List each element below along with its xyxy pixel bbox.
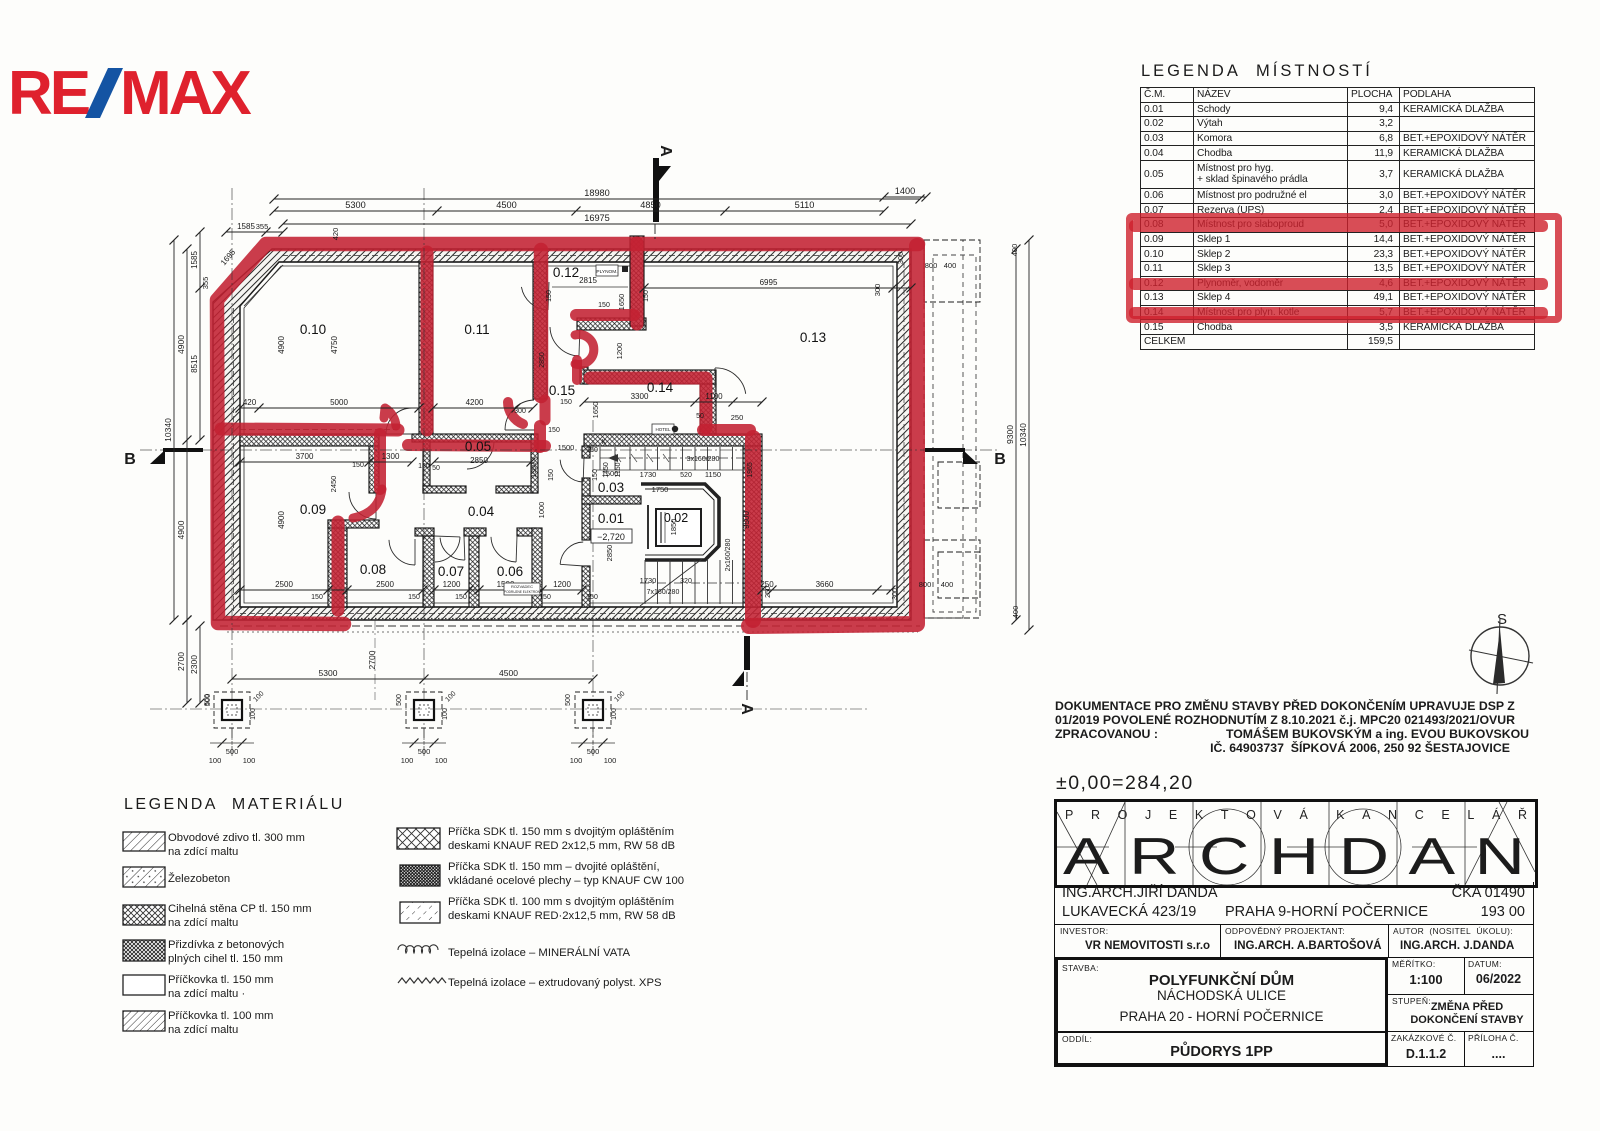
svg-text:A R C H D A N: A R C H D A N <box>1063 828 1525 885</box>
svg-text:500: 500 <box>418 747 431 756</box>
svg-text:150: 150 <box>352 462 364 469</box>
svg-text:plných cihel tl. 150 mm: plných cihel tl. 150 mm <box>168 953 283 965</box>
svg-text:150: 150 <box>418 463 430 470</box>
svg-text:16975: 16975 <box>584 213 610 223</box>
svg-text:deskami KNAUF RED·2x12,5 mm, R: deskami KNAUF RED·2x12,5 mm, RW 58 dB <box>448 910 676 922</box>
svg-text:1000: 1000 <box>537 502 546 519</box>
svg-text:1300: 1300 <box>531 462 538 478</box>
svg-text:1150: 1150 <box>705 470 721 479</box>
svg-text:4900: 4900 <box>176 335 186 354</box>
svg-text:deskami KNAUF RED 2x12,5 mm, R: deskami KNAUF RED 2x12,5 mm, RW 58 dB <box>448 840 675 852</box>
svg-text:10340: 10340 <box>1018 423 1028 447</box>
svg-text:na zdící maltu ·: na zdící maltu · <box>168 988 245 1000</box>
svg-text:0.14: 0.14 <box>647 380 674 395</box>
svg-text:100: 100 <box>613 690 626 703</box>
svg-text:300: 300 <box>514 408 526 415</box>
svg-text:0.11: 0.11 <box>464 322 489 337</box>
svg-text:0.03: 0.03 <box>598 480 624 495</box>
svg-text:0.13: 0.13 <box>800 330 826 345</box>
svg-text:0.08: 0.08 <box>360 562 386 577</box>
svg-text:ROZVADEC: ROZVADEC <box>511 584 533 589</box>
svg-text:5110: 5110 <box>795 200 815 210</box>
svg-text:50: 50 <box>696 413 704 420</box>
svg-text:50: 50 <box>432 465 440 472</box>
svg-text:150: 150 <box>598 302 610 309</box>
svg-text:500: 500 <box>396 694 403 706</box>
svg-text:6995: 6995 <box>760 278 778 287</box>
svg-text:100: 100 <box>604 756 617 765</box>
svg-text:2850: 2850 <box>605 545 614 562</box>
svg-text:150: 150 <box>643 290 650 302</box>
svg-text:1200: 1200 <box>553 580 571 589</box>
svg-text:1200: 1200 <box>443 580 461 589</box>
svg-text:A: A <box>657 145 674 157</box>
svg-text:150: 150 <box>548 469 555 481</box>
svg-text:300: 300 <box>896 252 905 265</box>
svg-text:B: B <box>994 451 1006 468</box>
svg-text:100: 100 <box>209 756 222 765</box>
svg-text:300: 300 <box>873 284 882 297</box>
svg-text:1300: 1300 <box>382 452 400 461</box>
svg-text:150: 150 <box>546 290 553 302</box>
svg-text:Příčka SDK tl. 150 mm s dvojit: Příčka SDK tl. 150 mm s dvojitým opláště… <box>448 826 674 838</box>
svg-text:100: 100 <box>444 690 457 703</box>
svg-text:150: 150 <box>539 594 551 601</box>
svg-text:0.12: 0.12 <box>553 265 579 280</box>
svg-text:18980: 18980 <box>584 188 610 198</box>
svg-text:1730: 1730 <box>640 470 657 479</box>
svg-text:na zdící maltu: na zdící maltu <box>168 917 238 929</box>
svg-text:400: 400 <box>944 261 957 270</box>
svg-text:150: 150 <box>455 594 467 601</box>
svg-text:0.09: 0.09 <box>300 502 326 517</box>
svg-text:2500: 2500 <box>275 580 293 589</box>
svg-text:420: 420 <box>243 398 257 407</box>
svg-text:0.10: 0.10 <box>300 322 326 337</box>
svg-text:Příčka SDK tl. 100 mm s dvojit: Příčka SDK tl. 100 mm s dvojitým opláště… <box>448 896 674 908</box>
svg-text:3x160/280: 3x160/280 <box>687 456 720 463</box>
svg-text:0.01: 0.01 <box>598 511 624 526</box>
svg-text:2850: 2850 <box>539 352 546 368</box>
svg-text:800: 800 <box>925 261 938 270</box>
svg-text:Tepelná izolace – extrudovaný: Tepelná izolace – extrudovaný polyst. XP… <box>448 977 662 989</box>
svg-text:250: 250 <box>731 413 744 422</box>
svg-text:4900: 4900 <box>176 520 186 539</box>
svg-text:520: 520 <box>680 472 692 479</box>
svg-text:S: S <box>1497 611 1507 628</box>
svg-text:2700: 2700 <box>176 652 186 671</box>
svg-text:4900: 4900 <box>277 511 286 529</box>
svg-text:10340: 10340 <box>163 418 173 442</box>
svg-text:Obvodové zdivo tl. 300 mm: Obvodové zdivo tl. 300 mm <box>168 832 305 844</box>
svg-text:0.05: 0.05 <box>465 439 491 454</box>
svg-text:100: 100 <box>250 708 257 720</box>
svg-text:2850: 2850 <box>470 456 488 465</box>
svg-text:1585: 1585 <box>190 251 199 269</box>
svg-text:−2,720: −2,720 <box>597 532 625 542</box>
svg-text:150: 150 <box>560 399 572 406</box>
svg-text:1730: 1730 <box>640 576 657 585</box>
svg-text:150: 150 <box>311 594 323 601</box>
svg-text:150: 150 <box>586 594 598 601</box>
svg-text:420: 420 <box>331 228 340 241</box>
svg-text:PODRUZNE ELEKTRON: PODRUZNE ELEKTRON <box>504 590 541 594</box>
svg-text:4200: 4200 <box>466 398 484 407</box>
svg-text:800: 800 <box>919 580 932 589</box>
svg-text:4500: 4500 <box>496 200 516 210</box>
svg-text:Příčkovka tl. 150 mm: Příčkovka tl. 150 mm <box>168 974 273 986</box>
svg-text:2815: 2815 <box>579 276 597 285</box>
svg-text:4850: 4850 <box>640 200 660 210</box>
svg-text:K: K <box>602 439 607 446</box>
svg-text:2500: 2500 <box>376 580 394 589</box>
svg-text:2300: 2300 <box>189 655 199 674</box>
svg-text:9500: 9500 <box>742 511 751 529</box>
svg-text:4500: 4500 <box>499 668 518 678</box>
svg-text:150: 150 <box>548 427 560 434</box>
svg-text:100: 100 <box>611 708 618 720</box>
svg-text:Příčkovka tl. 100 mm: Příčkovka tl. 100 mm <box>168 1010 273 1022</box>
svg-text:5000: 5000 <box>330 398 348 407</box>
svg-text:0.06: 0.06 <box>497 564 523 579</box>
svg-text:100: 100 <box>243 756 256 765</box>
svg-text:0.15: 0.15 <box>549 383 575 398</box>
svg-text:150: 150 <box>408 594 420 601</box>
svg-text:3660: 3660 <box>816 580 834 589</box>
svg-text:150: 150 <box>586 447 598 454</box>
svg-text:7x160/280: 7x160/280 <box>647 589 680 596</box>
svg-text:400: 400 <box>941 580 954 589</box>
svg-text:3700: 3700 <box>296 452 314 461</box>
svg-text:1750: 1750 <box>652 485 669 494</box>
svg-text:355: 355 <box>201 277 210 290</box>
svg-text:400: 400 <box>1010 244 1019 257</box>
svg-text:300: 300 <box>892 588 899 600</box>
svg-text:500: 500 <box>203 694 212 707</box>
svg-text:1585: 1585 <box>237 222 255 231</box>
svg-text:PLYNOM.: PLYNOM. <box>596 269 617 275</box>
svg-text:0.04: 0.04 <box>468 504 495 519</box>
svg-text:9300: 9300 <box>1005 425 1015 444</box>
svg-text:2450: 2450 <box>329 476 338 493</box>
svg-text:Cihelná stěna CP tl. 150 mm: Cihelná stěna CP tl. 150 mm <box>168 903 312 915</box>
svg-text:Přizdívka z betonových: Přizdívka z betonových <box>168 939 284 951</box>
svg-text:355: 355 <box>256 222 269 231</box>
svg-text:100: 100 <box>401 756 414 765</box>
svg-text:500: 500 <box>565 694 572 706</box>
svg-text:400: 400 <box>1011 606 1020 619</box>
svg-text:100: 100 <box>252 690 265 703</box>
svg-text:1500: 1500 <box>558 443 575 452</box>
svg-text:1500: 1500 <box>602 469 619 478</box>
svg-text:1695: 1695 <box>219 247 238 267</box>
svg-text:5300: 5300 <box>319 668 338 678</box>
svg-text:1650: 1650 <box>591 402 600 419</box>
svg-text:4750: 4750 <box>330 336 339 354</box>
svg-text:1100: 1100 <box>705 392 723 401</box>
svg-text:vkládané ocelové plechy – typ: vkládané ocelové plechy – typ KNAUF CW 1… <box>448 875 684 887</box>
svg-text:250: 250 <box>765 586 772 598</box>
svg-text:1965: 1965 <box>747 462 754 478</box>
svg-text:2x160/280: 2x160/280 <box>725 539 732 572</box>
svg-text:100: 100 <box>570 756 583 765</box>
svg-text:5300: 5300 <box>345 200 365 210</box>
svg-text:1200: 1200 <box>615 343 624 360</box>
svg-text:0.02: 0.02 <box>664 511 688 525</box>
svg-text:8515: 8515 <box>190 355 199 373</box>
svg-text:320: 320 <box>680 578 692 585</box>
svg-text:100: 100 <box>442 708 449 720</box>
svg-text:HOTEL: HOTEL <box>655 427 671 432</box>
svg-text:1400: 1400 <box>895 186 915 196</box>
svg-text:na zdící maltu: na zdící maltu <box>168 1024 238 1036</box>
svg-text:0.07: 0.07 <box>438 564 464 579</box>
svg-text:500: 500 <box>587 747 600 756</box>
svg-text:2700: 2700 <box>367 650 377 669</box>
svg-text:P R O J E K T O V Á K A N C E: P R O J E K T O V Á K A N C E L Á Ř <box>1065 807 1527 822</box>
svg-text:4900: 4900 <box>277 336 286 354</box>
svg-text:na zdící maltu: na zdící maltu <box>168 846 238 858</box>
svg-text:1650: 1650 <box>617 294 626 311</box>
svg-text:Příčka SDK tl. 150 mm – dvojit: Příčka SDK tl. 150 mm – dvojité opláštěn… <box>448 861 660 873</box>
svg-text:B: B <box>124 451 136 468</box>
svg-text:500: 500 <box>226 747 239 756</box>
svg-text:Železobeton: Železobeton <box>168 872 230 885</box>
svg-text:Tepelná izolace – MINERÁLNÍ VA: Tepelná izolace – MINERÁLNÍ VATA <box>448 946 631 959</box>
svg-text:100: 100 <box>435 756 448 765</box>
